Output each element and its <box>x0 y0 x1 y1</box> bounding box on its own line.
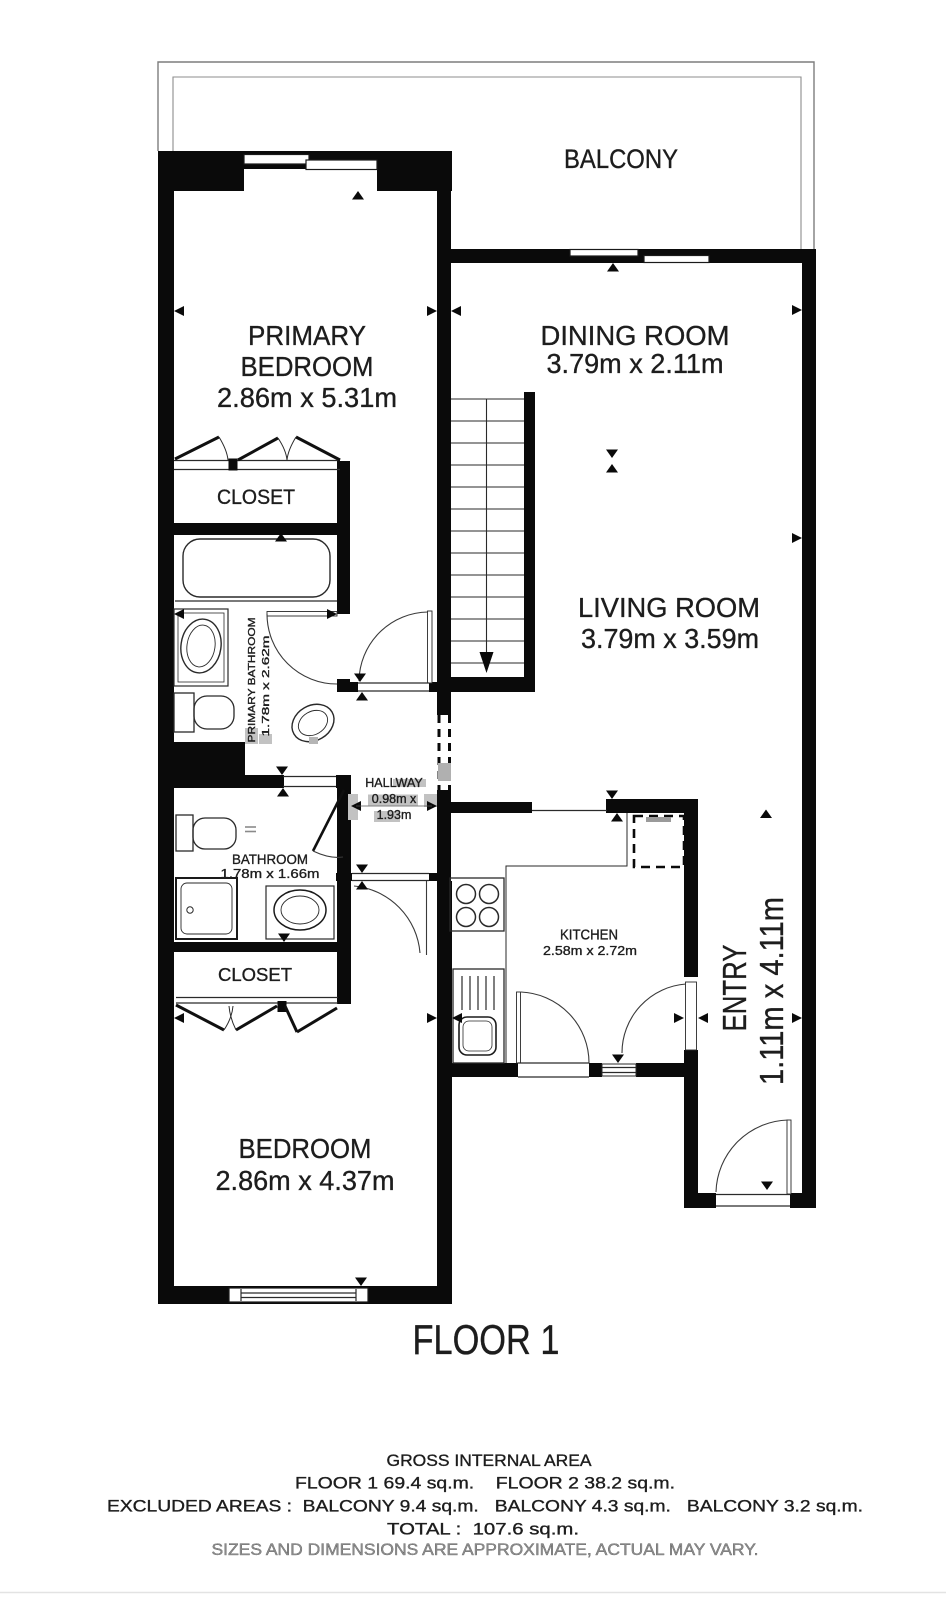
svg-text:2.86m x 4.37m: 2.86m x 4.37m <box>216 1165 395 1196</box>
svg-text:SIZES AND DIMENSIONS ARE APPRO: SIZES AND DIMENSIONS ARE APPROXIMATE, AC… <box>212 1540 759 1559</box>
svg-text:CLOSET: CLOSET <box>217 486 295 509</box>
svg-text:FLOOR 1: FLOOR 1 <box>413 1316 560 1363</box>
svg-text:2.58m x 2.72m: 2.58m x 2.72m <box>543 943 637 958</box>
svg-text:TOTAL : 107.6 sq.m.: TOTAL : 107.6 sq.m. <box>387 1520 579 1539</box>
svg-text:LIVING ROOM: LIVING ROOM <box>578 592 760 623</box>
svg-text:PRIMARY: PRIMARY <box>248 320 366 351</box>
svg-text:KITCHEN: KITCHEN <box>560 928 618 944</box>
svg-text:1.78m x 2.62m: 1.78m x 2.62m <box>261 636 272 737</box>
svg-text:BALCONY: BALCONY <box>564 144 678 174</box>
svg-text:BEDROOM: BEDROOM <box>241 351 374 382</box>
svg-text:PRIMARY BATHROOM: PRIMARY BATHROOM <box>247 618 258 743</box>
svg-text:FLOOR 1 69.4 sq.m. FLOOR 2: FLOOR 1 69.4 sq.m. FLOOR 2 38.2 sq.m. <box>295 1474 675 1493</box>
svg-text:HALLWAY: HALLWAY <box>365 776 423 790</box>
svg-text:1.93m: 1.93m <box>377 808 412 822</box>
svg-text:1.78m x 1.66m: 1.78m x 1.66m <box>221 867 320 881</box>
svg-text:BEDROOM: BEDROOM <box>239 1133 372 1164</box>
svg-text:GROSS INTERNAL AREA: GROSS INTERNAL AREA <box>387 1451 593 1470</box>
svg-text:CLOSET: CLOSET <box>218 964 292 985</box>
svg-text:ENTRY: ENTRY <box>716 945 753 1032</box>
svg-text:0.98m x: 0.98m x <box>372 792 417 806</box>
svg-text:BATHROOM: BATHROOM <box>232 851 308 867</box>
svg-text:1.11m x 4.11m: 1.11m x 4.11m <box>753 897 790 1085</box>
svg-text:EXCLUDED AREAS : BALCONY 9.4: EXCLUDED AREAS : BALCONY 9.4 sq.m. BALCO… <box>107 1497 863 1516</box>
svg-text:DINING ROOM: DINING ROOM <box>541 320 730 351</box>
svg-text:2.86m x 5.31m: 2.86m x 5.31m <box>217 382 397 413</box>
svg-text:3.79m x 3.59m: 3.79m x 3.59m <box>581 623 759 654</box>
svg-text:3.79m x 2.11m: 3.79m x 2.11m <box>547 348 724 379</box>
